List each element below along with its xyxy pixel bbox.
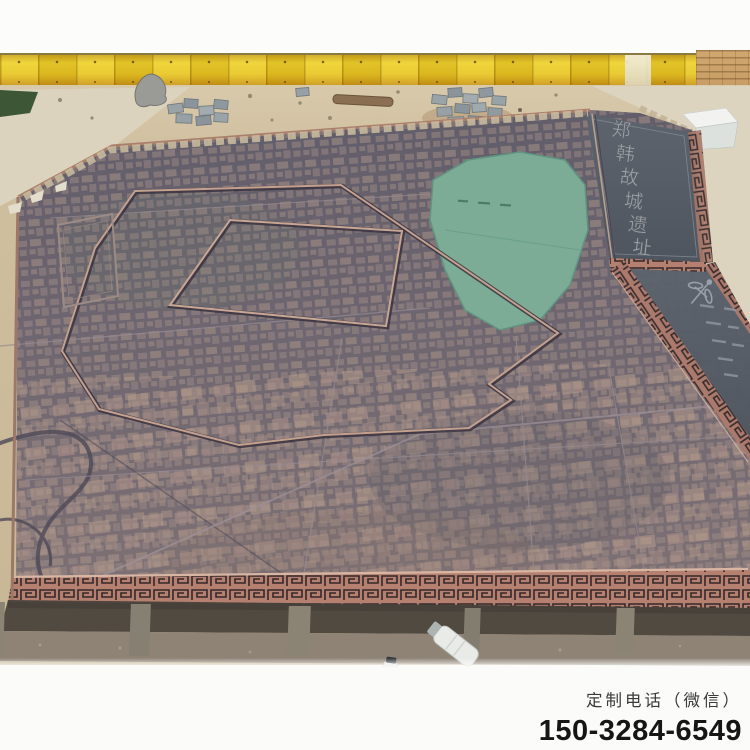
gray-tarp: [135, 74, 166, 107]
brick-pile-left: [168, 99, 229, 126]
svg-text:韩: 韩: [615, 142, 637, 166]
bronze-map-slab: 郑 韩 故 城 遗 址: [0, 110, 750, 614]
svg-text:址: 址: [631, 236, 653, 260]
photo-stage: 郑 韩 故 城 遗 址: [0, 0, 750, 750]
svg-text:城: 城: [623, 189, 645, 213]
single-brick: [296, 87, 310, 96]
contact-phone: 150-3284-6549: [539, 714, 742, 748]
svg-text:郑: 郑: [610, 118, 632, 142]
wood-log: [333, 94, 393, 106]
bronze-map-scene: 郑 韩 故 城 遗 址: [0, 0, 750, 750]
contact-label: 定制电话（微信）: [539, 688, 742, 714]
svg-text:故: 故: [619, 166, 641, 190]
contact-overlay: 定制电话（微信） 150-3284-6549: [539, 688, 742, 748]
svg-text:遗: 遗: [627, 213, 649, 237]
